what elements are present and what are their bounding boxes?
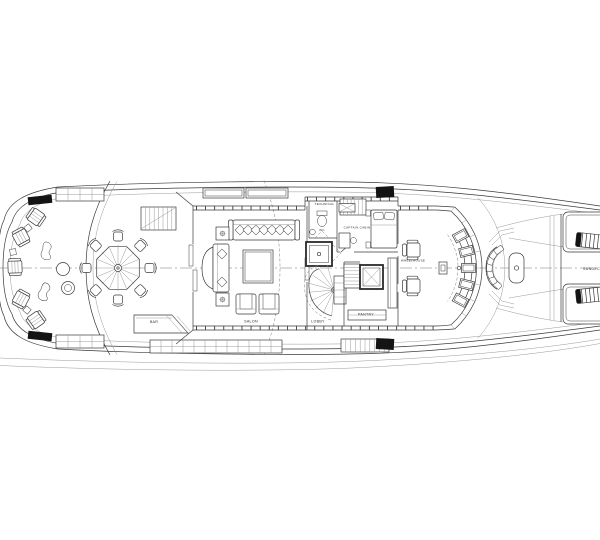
salon-end-table: [216, 293, 229, 306]
day-shower: [306, 242, 341, 266]
ring-table: [62, 282, 75, 295]
technical-space: TECHNICAL: [309, 201, 341, 210]
technical-label: TECHNICAL: [315, 202, 335, 206]
main-staircase: [304, 265, 346, 320]
side-table: [10, 249, 17, 256]
helm-position-marker: [457, 266, 461, 270]
port-aft-grating: [141, 207, 176, 230]
aft-deck-bar: BAR: [134, 315, 190, 333]
cabin-desk: [339, 233, 357, 248]
dumbwaiter: [360, 265, 383, 289]
salon-sofa: [229, 220, 300, 240]
deck-box-port-fwd: [376, 186, 395, 198]
salon-aft-door: [189, 245, 193, 266]
salon-end-table: [216, 227, 229, 240]
wheelhouse-label: WHEELHOUSE: [401, 259, 425, 263]
pantry-label: PANTRY: [358, 313, 374, 317]
toilet: [318, 216, 327, 227]
helm-console: [439, 229, 476, 308]
sundeck-label: SUNDECK: [583, 267, 600, 271]
salon: SALON: [202, 220, 300, 324]
foredeck-table: [509, 253, 524, 283]
stern-deck-chairs: [8, 206, 47, 330]
deck-plan-canvas: BAR: [0, 0, 600, 540]
salon-aft-door: [193, 270, 197, 291]
deck-box-stbd-aft: [28, 331, 53, 341]
stbd-locker-grid: [56, 335, 104, 348]
companion-stair: [344, 264, 360, 288]
helm-seat-port: [403, 240, 421, 260]
salon-side-sofa: [202, 244, 229, 292]
port-locker-grid: [56, 188, 104, 201]
round-table: [57, 263, 70, 276]
deck-box-stbd-fwd: [376, 338, 395, 350]
armchair: [259, 294, 279, 314]
captain-cabin: CAPTAIN CABIN: [337, 204, 398, 253]
deck-box-port-aft: [28, 195, 53, 205]
lobby-label: LOBBY: [311, 320, 325, 324]
toilet-tank: [317, 211, 327, 216]
stbd-side-grid-band: [150, 340, 282, 353]
bean-stool-stbd: [37, 282, 51, 302]
coffee-table: [243, 250, 273, 283]
cabin-closet: [339, 204, 355, 213]
helm-seat-stbd: [403, 276, 421, 296]
captain-bed: [366, 210, 397, 248]
bar-label: BAR: [150, 320, 158, 324]
port-side-boxes: [203, 188, 288, 198]
wash-basin: [310, 229, 316, 235]
bean-stool-port: [41, 242, 51, 260]
armchair: [236, 294, 256, 314]
salon-label: SALON: [244, 320, 258, 324]
captain-cabin-label: CAPTAIN CABIN: [344, 226, 371, 230]
deck-plan-page: BAR: [0, 0, 600, 540]
wc-label: WC: [319, 228, 325, 232]
dining-table-umbrella: [95, 245, 141, 291]
pantry: PANTRY: [344, 258, 397, 326]
